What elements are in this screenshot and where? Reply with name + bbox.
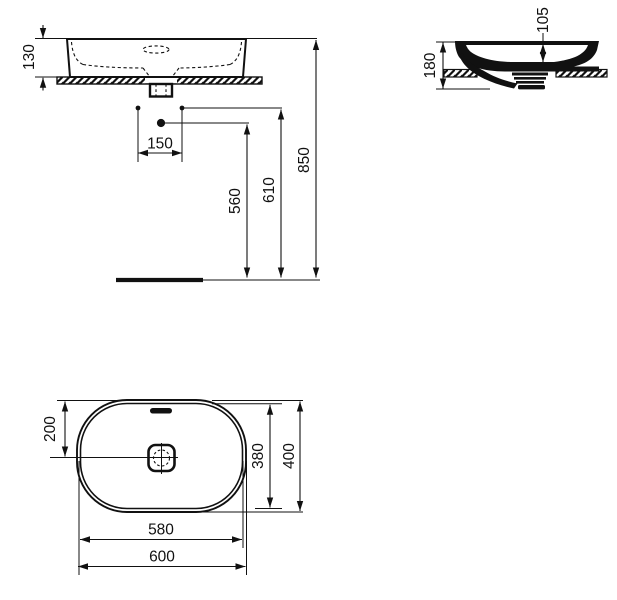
plan-drain	[50, 443, 178, 474]
dim-label-overall-height: 180	[422, 52, 439, 78]
dim-label-spout-height: 560	[227, 188, 244, 214]
tap-hole-right-dot	[180, 106, 185, 111]
dim-label-tap-height: 610	[261, 177, 278, 203]
plan-view: 200 380 400 580 600	[42, 400, 303, 575]
dim-label-basin-height: 130	[21, 44, 38, 70]
front-drain-stub	[150, 84, 172, 97]
tap-hole-left-dot	[136, 106, 141, 111]
dim-label-inner-depth: 380	[250, 443, 267, 469]
dim-label-inner-width: 580	[148, 522, 174, 539]
plan-extension-lines	[57, 401, 303, 576]
dim-label-rim-height: 850	[296, 147, 313, 173]
plan-overflow-slot	[150, 408, 172, 414]
spout-dot	[157, 119, 165, 127]
dim-label-bowl-depth: 105	[535, 7, 552, 33]
tap-hole-markers	[136, 106, 185, 128]
plan-dimension-lines	[65, 402, 300, 567]
side-section-view: 180 105	[422, 7, 607, 89]
front-view: 130 150 560 610 850	[21, 25, 320, 280]
dim-label-drain-offset: 200	[42, 416, 59, 442]
technical-drawing-page: 130 150 560 610 850	[0, 0, 617, 600]
dim-label-overall-depth: 400	[281, 443, 298, 469]
dim-label-overall-width: 600	[149, 549, 175, 566]
basin-front-outline	[67, 39, 246, 77]
dim-label-tap-spacing: 150	[147, 136, 173, 153]
washbasin-dimension-drawing: 130 150 560 610 850	[0, 0, 617, 600]
side-drain-stack	[512, 73, 548, 90]
